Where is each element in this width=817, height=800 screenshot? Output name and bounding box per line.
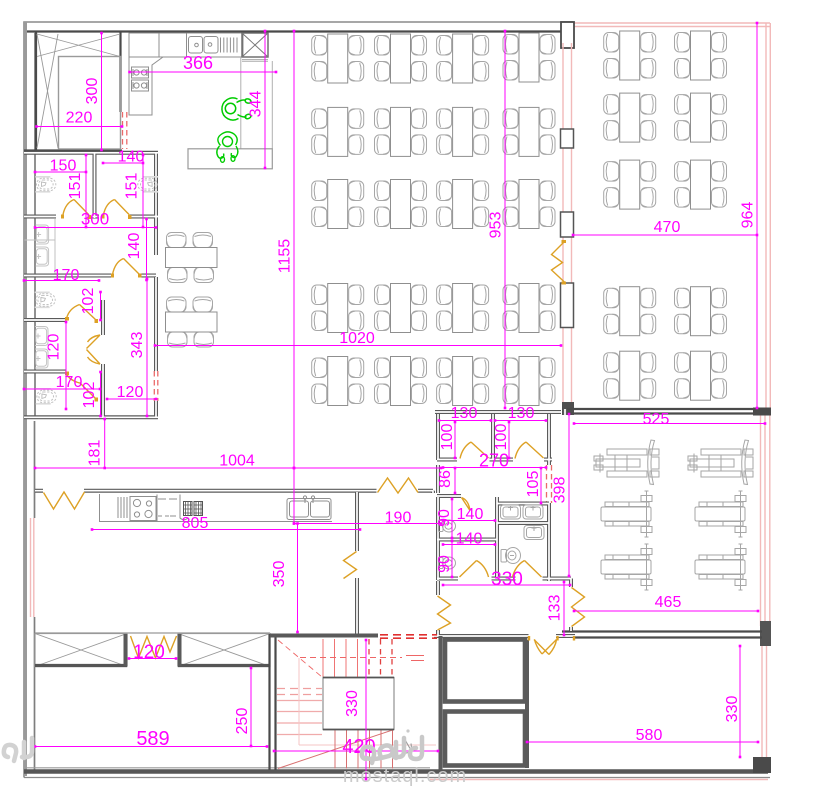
svg-text:102: 102 [81,382,98,409]
svg-text:953: 953 [488,212,505,239]
svg-text:120: 120 [133,642,165,663]
svg-text:100: 100 [493,424,510,451]
svg-text:140: 140 [456,531,483,548]
svg-text:330: 330 [724,696,741,723]
svg-text:130: 130 [508,405,535,422]
svg-text:330: 330 [344,690,361,717]
svg-text:151: 151 [67,173,84,200]
svg-text:1004: 1004 [219,453,255,470]
svg-text:300: 300 [84,78,101,105]
svg-text:343: 343 [129,332,146,359]
svg-text:130: 130 [451,405,478,422]
svg-text:140: 140 [457,506,484,523]
svg-text:1155: 1155 [277,239,294,274]
svg-text:133: 133 [547,595,564,622]
svg-text:465: 465 [655,594,682,611]
svg-text:150: 150 [50,158,77,175]
svg-text:181: 181 [87,440,104,467]
svg-text:805: 805 [182,515,209,532]
svg-text:470: 470 [654,219,681,236]
svg-text:589: 589 [136,728,169,750]
svg-text:580: 580 [636,727,663,744]
svg-text:398: 398 [552,477,569,504]
svg-text:300: 300 [81,210,109,229]
svg-text:102: 102 [80,288,97,315]
svg-text:366: 366 [183,53,213,73]
svg-text:330: 330 [491,569,523,590]
svg-text:100: 100 [439,424,456,451]
svg-text:170: 170 [53,267,80,284]
svg-text:350: 350 [271,561,288,588]
svg-text:151: 151 [124,173,141,200]
svg-text:mostaql.com: mostaql.com [343,765,467,787]
svg-text:140: 140 [126,233,143,260]
svg-text:190: 190 [385,510,412,527]
svg-text:120: 120 [117,384,144,401]
svg-text:344: 344 [248,91,265,118]
svg-text:120: 120 [46,334,63,361]
svg-text:220: 220 [66,110,93,127]
svg-text:105: 105 [525,471,542,498]
svg-text:90: 90 [436,509,453,527]
svg-text:1020: 1020 [339,330,375,347]
svg-text:525: 525 [643,411,670,428]
svg-text:964: 964 [740,202,757,229]
svg-text:170: 170 [56,374,83,391]
svg-text:250: 250 [234,708,251,735]
svg-text:140: 140 [118,149,145,166]
svg-text:86: 86 [437,470,454,488]
svg-text:270: 270 [479,451,509,471]
svg-text:90: 90 [436,555,453,573]
